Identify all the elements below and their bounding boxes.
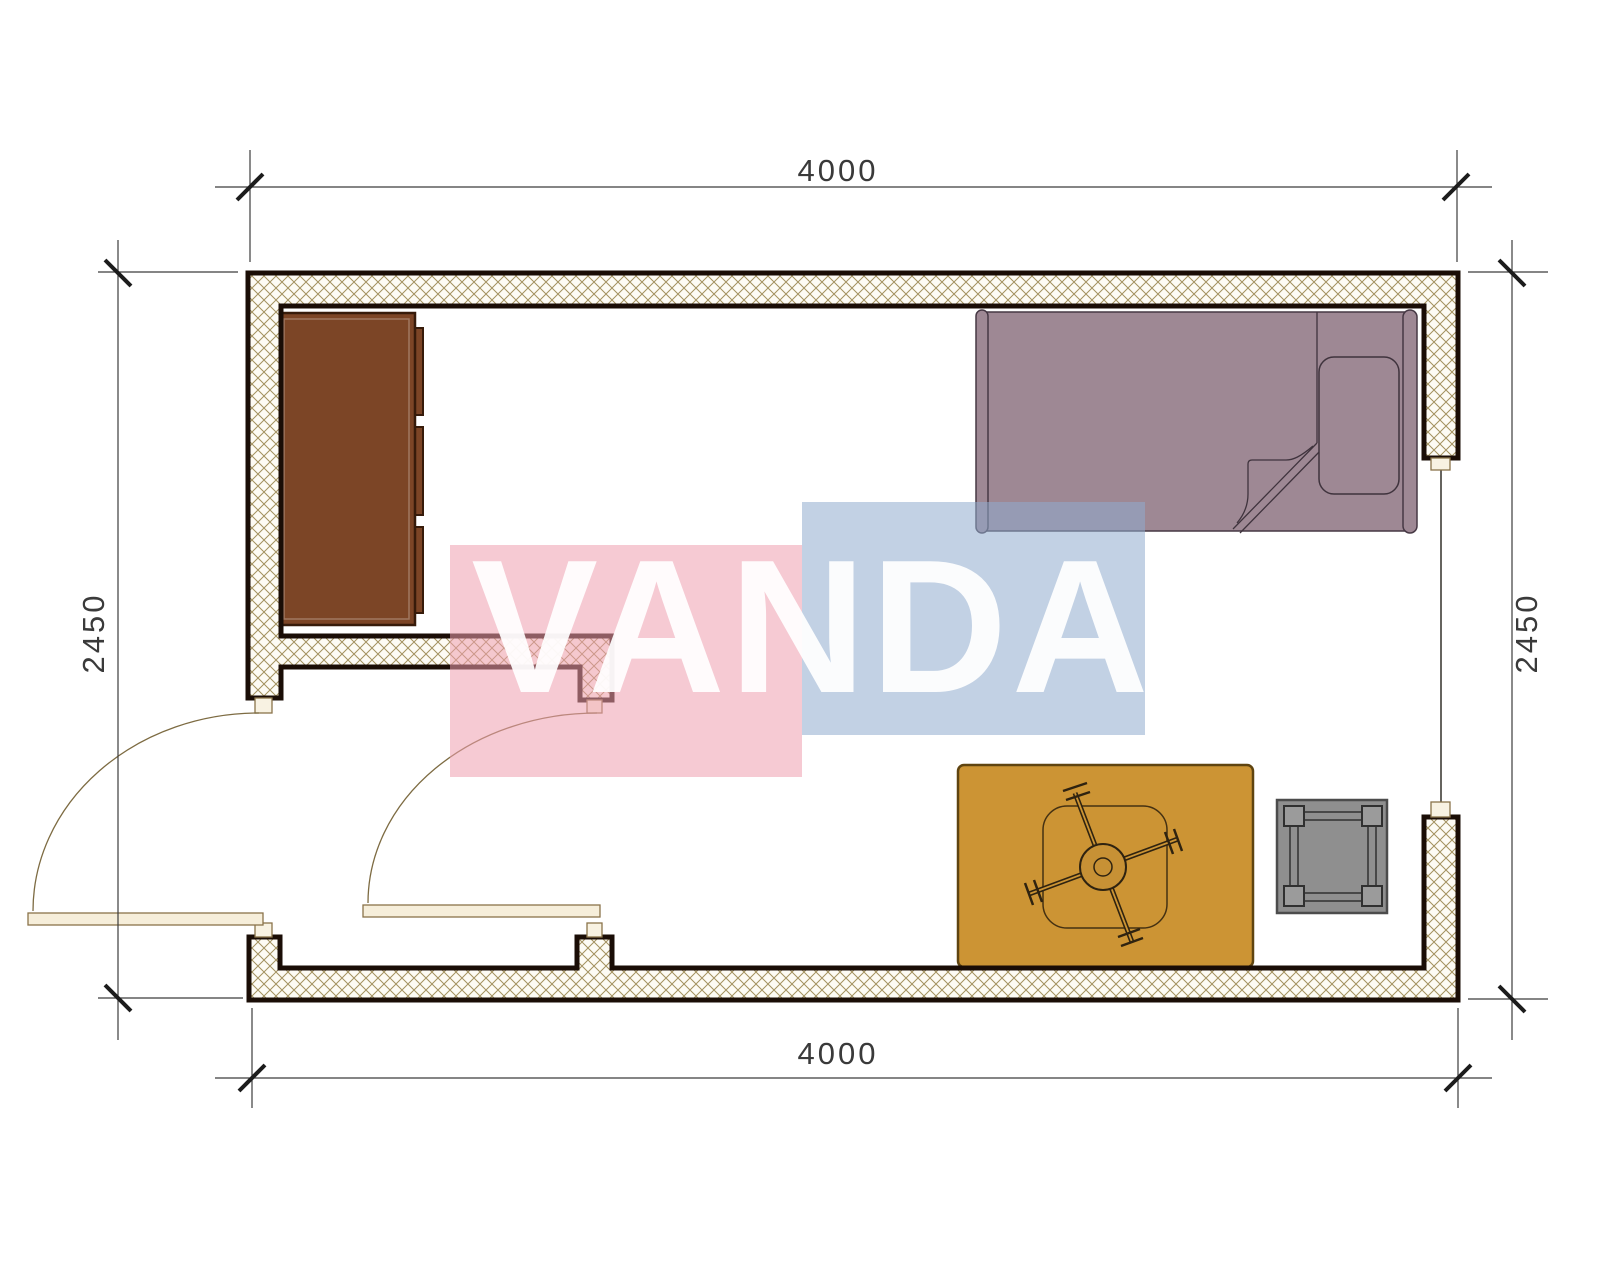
floor-plan-page: 4000 4000 2450 2450 VANDA (0, 0, 1600, 1280)
dresser (278, 313, 423, 625)
chair-hub (1080, 844, 1126, 890)
watermark: VANDA (450, 502, 1153, 777)
pillow (1319, 357, 1399, 494)
dresser-body (278, 313, 415, 625)
bed-headboard (976, 310, 988, 533)
side-table-leg (1284, 806, 1304, 826)
floor-plan-drawing: 4000 4000 2450 2450 VANDA (0, 0, 1600, 1280)
bed (976, 310, 1417, 533)
bed-footboard (1403, 310, 1417, 533)
entry-door (28, 713, 263, 925)
side-table (1277, 800, 1387, 913)
door-jamb (255, 698, 272, 713)
window-jamb (1431, 802, 1450, 817)
interior-door-leaf (363, 905, 600, 917)
side-table-leg (1284, 886, 1304, 906)
watermark-text: VANDA (471, 521, 1152, 733)
dimension-label-left: 2450 (76, 593, 111, 674)
entry-door-leaf (28, 913, 263, 925)
rug-with-chair (958, 765, 1253, 967)
side-table-leg (1362, 806, 1382, 826)
dimension-label-bottom: 4000 (798, 1036, 879, 1071)
side-table-leg (1362, 886, 1382, 906)
dimension-label-top: 4000 (798, 153, 879, 188)
entry-door-swing-arc (33, 713, 259, 911)
dimension-label-right: 2450 (1509, 593, 1544, 674)
window-jamb (1431, 458, 1450, 470)
door-jamb (587, 923, 602, 937)
